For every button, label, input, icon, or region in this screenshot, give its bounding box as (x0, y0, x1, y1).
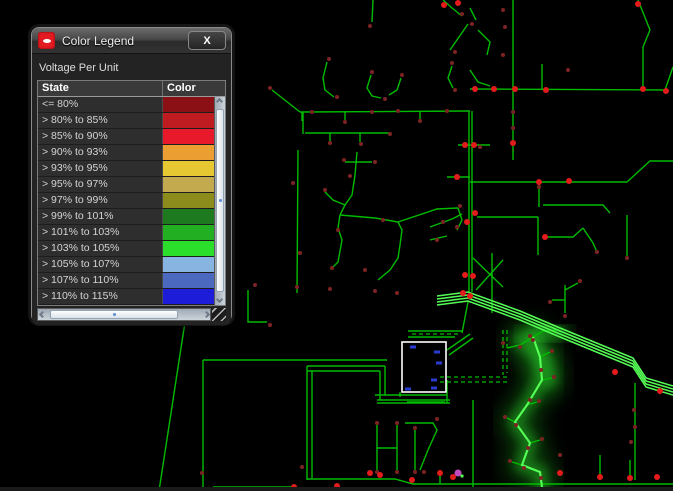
legend-row[interactable]: > 110% to 115% (38, 289, 214, 305)
legend-subtitle: Voltage Per Unit (37, 58, 226, 80)
legend-color-swatch (163, 113, 214, 128)
legend-state-label: > 99% to 101% (38, 209, 163, 224)
legend-row[interactable]: > 93% to 95% (38, 161, 214, 177)
legend-state-label: > 101% to 103% (38, 225, 163, 240)
legend-row[interactable]: <= 80% (38, 97, 214, 113)
legend-state-label: > 90% to 93% (38, 145, 163, 160)
legend-row[interactable]: > 95% to 97% (38, 177, 214, 193)
legend-rows: <= 80%> 80% to 85%> 85% to 90%> 90% to 9… (38, 97, 214, 305)
legend-row[interactable]: > 99% to 101% (38, 209, 214, 225)
legend-row[interactable]: > 85% to 90% (38, 129, 214, 145)
legend-table-header: State Color (38, 81, 225, 97)
oracle-ring (43, 39, 51, 43)
legend-row[interactable]: > 80% to 85% (38, 113, 214, 129)
color-column-header: Color (163, 81, 214, 96)
map-overlays (402, 342, 464, 478)
window-title: Color Legend (62, 34, 134, 48)
legend-row[interactable]: > 107% to 110% (38, 273, 214, 289)
legend-color-swatch (163, 273, 214, 288)
scroll-down-icon[interactable] (217, 297, 223, 303)
legend-row[interactable]: > 90% to 93% (38, 145, 214, 161)
legend-color-swatch (163, 177, 214, 192)
legend-state-label: > 97% to 99% (38, 193, 163, 208)
color-legend-window[interactable]: Color Legend X Voltage Per Unit State Co… (31, 27, 232, 323)
dialog-bottom-bar (37, 308, 226, 321)
legend-color-swatch (163, 145, 214, 160)
legend-row[interactable]: > 97% to 99% (38, 193, 214, 209)
horizontal-scroll-thumb[interactable] (50, 310, 178, 319)
legend-color-swatch (163, 193, 214, 208)
horizontal-scrollbar[interactable] (37, 308, 211, 321)
dialog-body: Voltage Per Unit State Color <= 80%> 80%… (32, 54, 231, 325)
legend-state-label: > 85% to 90% (38, 129, 163, 144)
legend-color-swatch (163, 289, 214, 304)
legend-color-swatch (163, 209, 214, 224)
legend-state-label: > 105% to 107% (38, 257, 163, 272)
scroll-left-icon[interactable] (40, 312, 46, 318)
vertical-scrollbar[interactable] (214, 97, 225, 305)
legend-state-label: > 110% to 115% (38, 289, 163, 304)
selection-rectangle[interactable] (402, 342, 446, 392)
legend-state-label: > 107% to 110% (38, 273, 163, 288)
window-bottom-edge (0, 487, 673, 491)
state-column-header: State (38, 81, 163, 96)
legend-table: State Color <= 80%> 80% to 85%> 85% to 9… (37, 80, 226, 306)
legend-state-label: > 95% to 97% (38, 177, 163, 192)
legend-color-swatch (163, 161, 214, 176)
legend-color-swatch (163, 129, 214, 144)
legend-row[interactable]: > 103% to 105% (38, 241, 214, 257)
legend-color-swatch (163, 97, 214, 112)
scroll-up-icon[interactable] (217, 99, 223, 105)
feeder-lines (159, 0, 673, 491)
legend-color-swatch (163, 257, 214, 272)
legend-color-swatch (163, 241, 214, 256)
oracle-logo-icon (38, 32, 55, 49)
device-dots (200, 0, 669, 490)
legend-row[interactable]: > 105% to 107% (38, 257, 214, 273)
titlebar[interactable]: Color Legend X (32, 28, 231, 54)
legend-state-label: <= 80% (38, 97, 163, 112)
legend-state-label: > 93% to 95% (38, 161, 163, 176)
resize-grip[interactable] (212, 308, 226, 321)
vertical-scroll-thumb[interactable] (216, 109, 224, 292)
scroll-right-icon[interactable] (204, 312, 210, 318)
application-window: Color Legend X Voltage Per Unit State Co… (0, 0, 673, 491)
legend-color-swatch (163, 225, 214, 240)
legend-state-label: > 80% to 85% (38, 113, 163, 128)
legend-row[interactable]: > 101% to 103% (38, 225, 214, 241)
legend-state-label: > 103% to 105% (38, 241, 163, 256)
close-button[interactable]: X (188, 31, 226, 50)
